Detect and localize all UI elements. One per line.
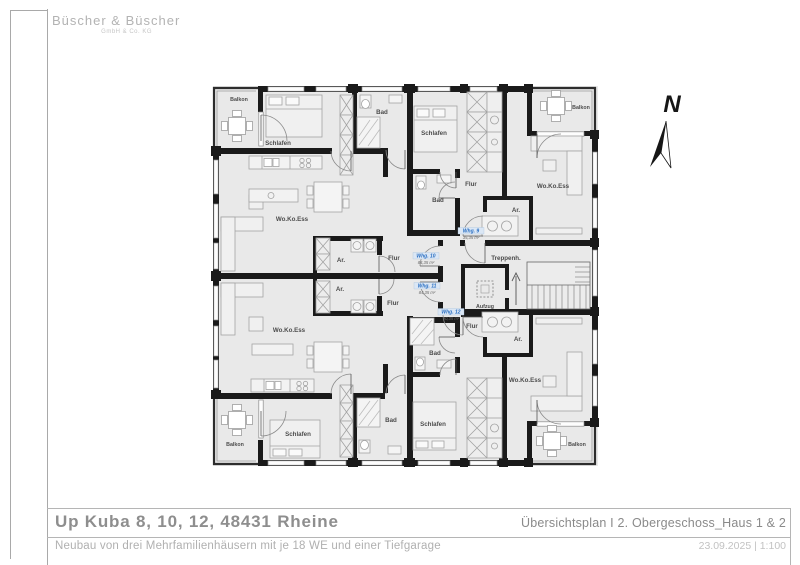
bed: [414, 106, 457, 152]
room-label-schlafen: Schlafen: [420, 421, 446, 428]
room-label-schlafen: Schlafen: [285, 431, 311, 438]
room-label-balkon: Balkon: [572, 105, 590, 111]
room-label-balkon: Balkon: [568, 442, 586, 448]
north-label: N: [663, 91, 681, 118]
apartment-area: 84,35 m²: [419, 290, 436, 295]
project-subtitle: Neubau von drei Mehrfamilienhäusern mit …: [55, 540, 441, 552]
plan-title: Übersichtsplan I 2. Obergeschoss_Haus 1 …: [521, 516, 786, 530]
plan-date-scale: 23.09.2025 | 1:100: [699, 540, 786, 552]
apartment-area: 90,35 m²: [443, 316, 460, 321]
apartment-area: 35,35 m²: [463, 235, 480, 240]
room-label-schlafen: Schlafen: [265, 140, 291, 147]
room-label-flur: Flur: [465, 181, 477, 188]
room-label-bad: Bad: [432, 197, 444, 204]
room-label-abstellraum: Ar.: [336, 286, 345, 293]
room-label-treppenhaus: Treppenh.: [491, 255, 521, 262]
titleblock-top-rule: [47, 508, 790, 509]
north-arrow-outline-half: [661, 121, 671, 168]
apartment-id: Whg. 11: [418, 284, 437, 290]
room-label-balkon: Balkon: [230, 97, 248, 103]
room-label-abstellraum: Ar.: [512, 207, 521, 214]
room-label-bad: Bad: [376, 109, 388, 116]
titleblock-right-rule: [790, 508, 791, 565]
room-label-wohnen: Wo.Ko.Ess: [273, 327, 306, 334]
apartment-id: Whg. 9: [463, 229, 480, 235]
apartment-id: Whg. 10: [416, 254, 435, 260]
room-label-flur: Flur: [388, 255, 400, 262]
floor-plan-drawing: Balkon Schlafen Bad Wo.Ko.Ess Ar. Flur S…: [0, 0, 800, 565]
room-label-flur: Flur: [466, 323, 478, 330]
plan-sheet: Büscher & Büscher GmbH & Co. KG: [0, 0, 800, 565]
room-label-flur: Flur: [387, 300, 399, 307]
titleblock-mid-rule: [47, 537, 790, 538]
room-label-bad: Bad: [385, 417, 397, 424]
room-label-balkon: Balkon: [226, 442, 244, 448]
room-label-schlafen: Schlafen: [421, 130, 447, 137]
room-label-abstellraum: Ar.: [514, 336, 523, 343]
north-arrow: N: [650, 91, 681, 168]
room-label-aufzug: Aufzug: [476, 304, 494, 310]
room-label-bad: Bad: [429, 350, 441, 357]
apartment-area: 84,35 m²: [418, 260, 435, 265]
room-label-abstellraum: Ar.: [337, 257, 346, 264]
room-label-wohnen: Wo.Ko.Ess: [276, 216, 309, 223]
room-label-wohnen: Wo.Ko.Ess: [537, 183, 570, 190]
bed: [270, 420, 320, 458]
apartment-id: Whg. 12: [441, 310, 460, 316]
project-title: Up Kuba 8, 10, 12, 48431 Rheine: [55, 512, 339, 532]
bed: [266, 95, 322, 137]
room-label-wohnen: Wo.Ko.Ess: [509, 377, 542, 384]
